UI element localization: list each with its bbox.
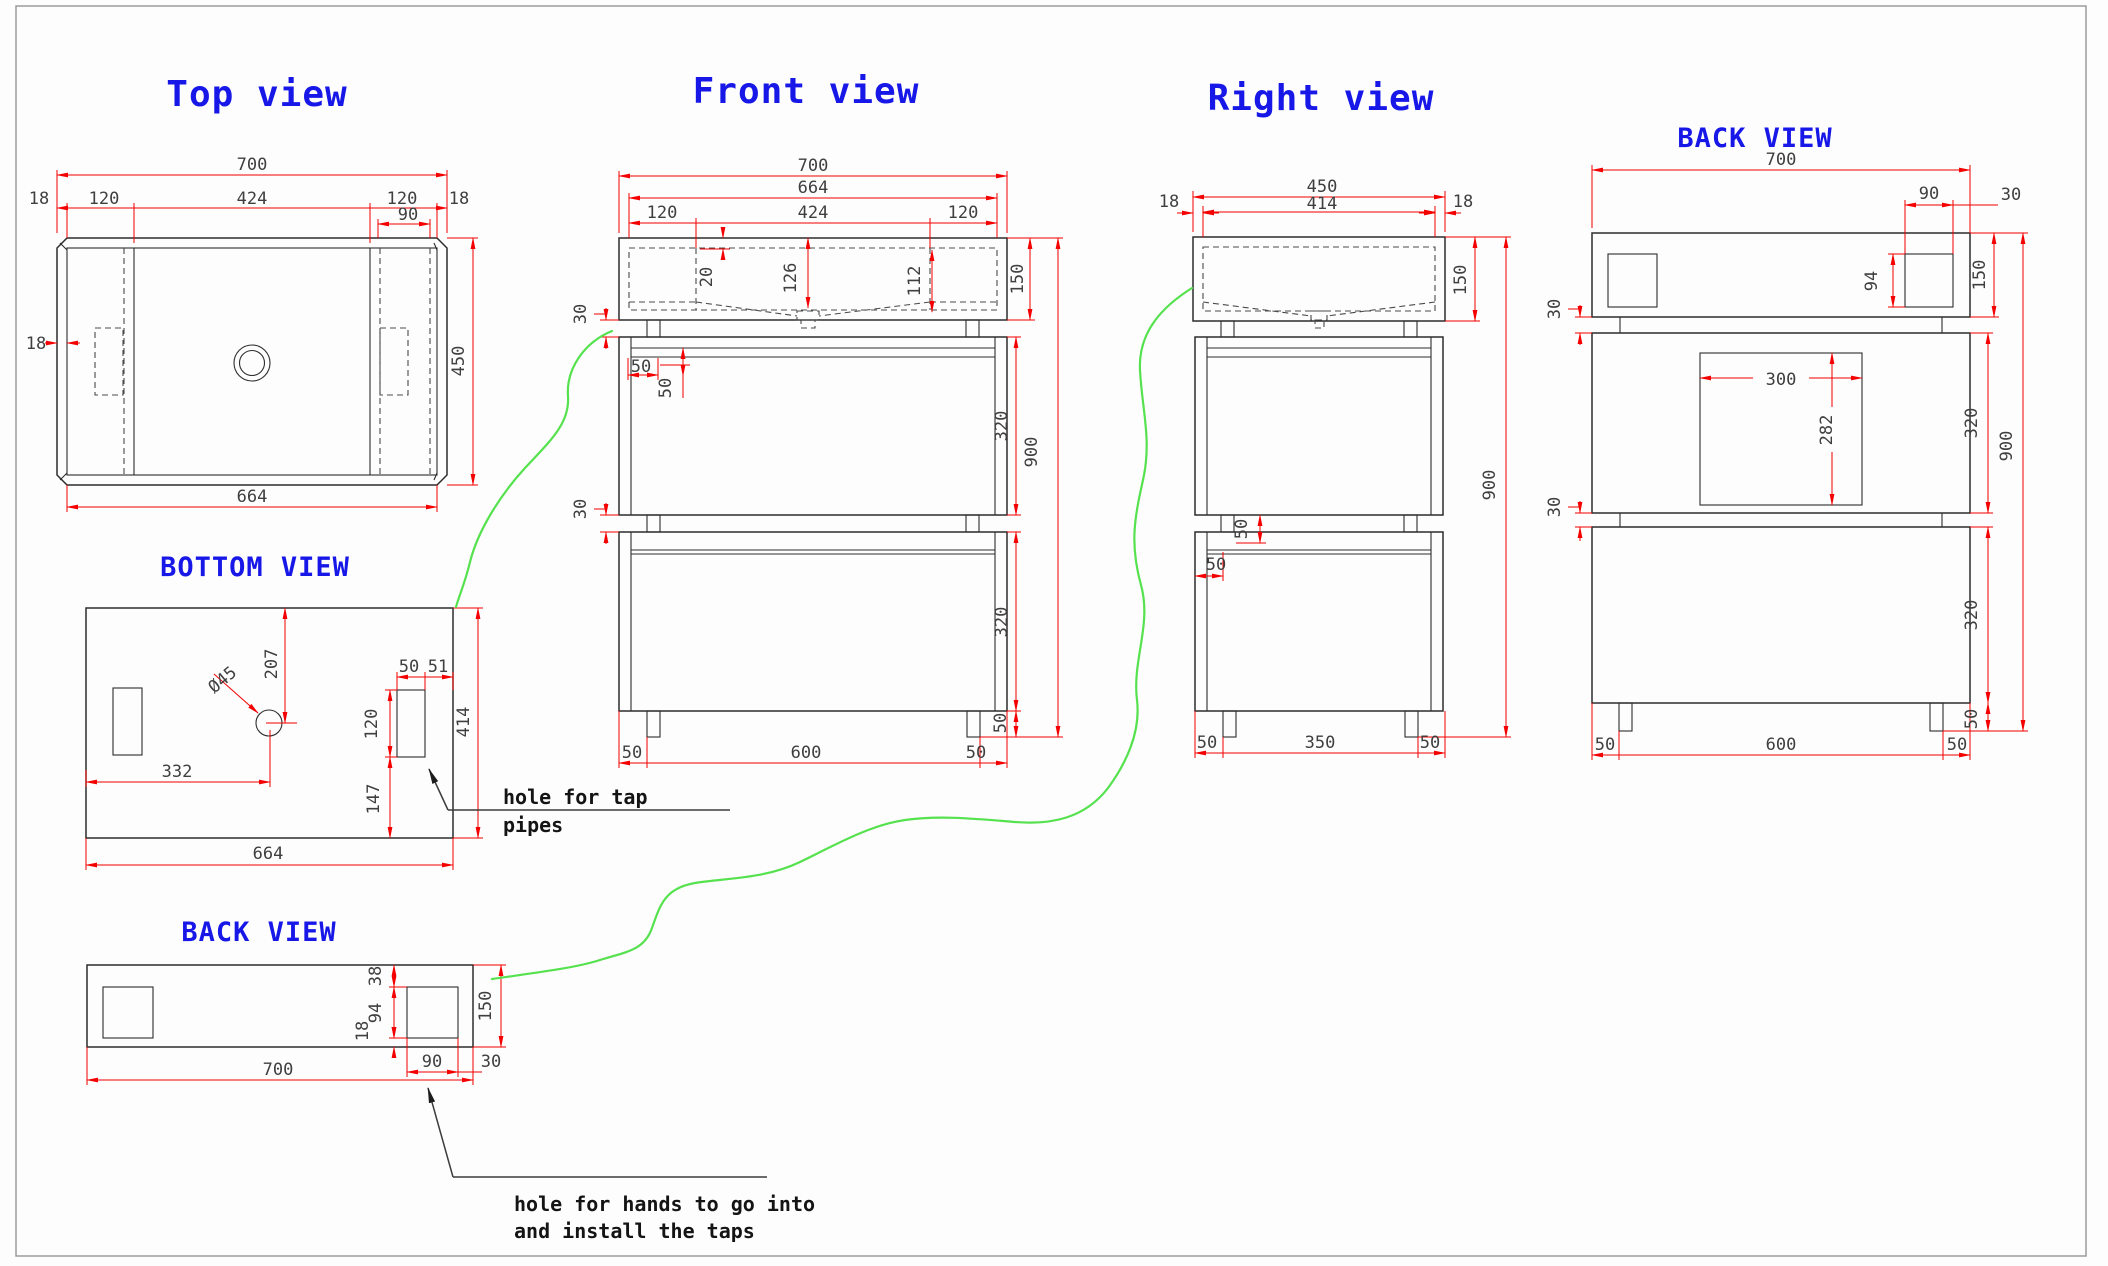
green-connector-front-to-bottom — [456, 331, 612, 607]
dim-front-overall-height: 900 — [1022, 437, 1042, 468]
sheet-border — [16, 6, 2086, 1256]
dim-top-inset-left: 120 — [89, 189, 120, 209]
dim-backtop-drawer-lower: 320 — [1962, 600, 1982, 631]
top-slot-right-hidden — [380, 328, 408, 395]
dim-front-drawer-upper: 320 — [992, 411, 1012, 442]
dim-backbottom-overall-width: 700 — [263, 1060, 294, 1080]
dim-top-depth: 450 — [449, 346, 469, 377]
dim-bottom-width: 664 — [253, 844, 284, 864]
dim-right-rail-height: 50 — [1232, 519, 1252, 539]
top-view-title: Top view — [166, 74, 347, 115]
front-basin-outline — [619, 238, 1007, 320]
dim-backtop-top-height: 150 — [1970, 260, 1990, 291]
dim-front-rim-depth: 20 — [697, 267, 717, 287]
top-outer-outline — [57, 238, 447, 485]
dim-backtop-gap-lower: 30 — [1545, 497, 1565, 517]
dim-right-foot-inset-left: 50 — [1197, 733, 1217, 753]
dim-backbottom-hole-to-edge: 30 — [481, 1052, 501, 1072]
back-top-foot-right — [1930, 703, 1943, 731]
dim-bottom-drain-from-top: 207 — [262, 649, 282, 680]
top-drain-hole — [240, 351, 265, 376]
dim-right-overall-height: 900 — [1480, 470, 1500, 501]
bottom-slot-left — [113, 688, 142, 755]
view-right: Right view 450 41 — [1159, 78, 1511, 758]
tap-pipes-leader-arrow — [429, 769, 448, 810]
dim-bottom-slot-to-bottom: 147 — [364, 784, 384, 815]
front-upper-box — [619, 337, 1007, 515]
right-spacer-left-upper — [1221, 321, 1234, 337]
dim-right-top-height: 150 — [1451, 265, 1471, 296]
green-connector-right-to-back — [492, 288, 1192, 979]
dim-front-top-inner-width: 664 — [798, 178, 829, 198]
dim-backbottom-hole-from-bottom: 18 — [353, 1021, 373, 1041]
dim-backtop-opening-height: 282 — [1817, 415, 1837, 446]
right-view-title: Right view — [1208, 78, 1435, 119]
dim-backtop-foot-span: 600 — [1766, 735, 1797, 755]
dim-front-foot-inset-left: 50 — [622, 743, 642, 763]
dim-front-basin-right: 120 — [948, 203, 979, 223]
dim-backtop-overall-width: 700 — [1766, 150, 1797, 170]
back-bottom-view-title: BACK VIEW — [181, 917, 336, 948]
dim-front-rail-height: 50 — [656, 378, 676, 398]
dim-backbottom-hole-width: 90 — [422, 1052, 442, 1072]
dim-front-rail-width: 50 — [631, 357, 651, 377]
dim-top-edge-right: 18 — [449, 189, 469, 209]
drawing-canvas: Top view 700 18 120 424 120 18 90 18 450… — [0, 0, 2108, 1266]
front-spacer-right-lower — [966, 515, 979, 532]
dim-bottom-slot-height: 120 — [362, 709, 382, 740]
dim-right-foot-span: 350 — [1305, 733, 1336, 753]
dim-front-drawer-lower: 320 — [992, 607, 1012, 638]
dim-bottom-drain-from-left: 332 — [162, 762, 193, 782]
dim-bottom-slot-width: 50 — [399, 657, 419, 677]
back-top-hole-left — [1608, 254, 1657, 307]
dim-backtop-hand-hole-width: 90 — [1919, 184, 1939, 204]
front-view-title: Front view — [693, 71, 920, 112]
back-top-hole-right — [1905, 254, 1953, 307]
dim-backtop-drawer-upper: 320 — [1962, 408, 1982, 439]
dim-backtop-foot-height: 50 — [1962, 709, 1982, 729]
dim-backtop-foot-inset-left: 50 — [1595, 735, 1615, 755]
bottom-slot-right — [397, 690, 425, 757]
back-bottom-hole-left — [103, 987, 153, 1038]
dim-backtop-overall-height: 900 — [1997, 431, 2017, 462]
front-foot-left — [647, 711, 660, 737]
dim-bottom-slot-to-edge: 51 — [428, 657, 448, 677]
right-foot-left — [1223, 711, 1236, 737]
right-basin-outline — [1193, 237, 1445, 321]
front-spacer-left-upper — [647, 320, 660, 337]
back-top-panel — [1592, 233, 1970, 317]
dim-front-basin-inner-depth: 112 — [905, 266, 925, 297]
hands-hole-leader-arrow — [428, 1088, 453, 1177]
hands-hole-note-line2: and install the taps — [514, 1219, 755, 1243]
right-spacer-right-lower — [1404, 515, 1417, 532]
view-back-bottom: BACK VIEW 38 94 18 150 90 30 700 hole fo… — [87, 917, 815, 1243]
dim-front-basin-left: 120 — [647, 203, 678, 223]
dim-right-inner-depth: 414 — [1307, 194, 1338, 214]
front-lower-box — [619, 532, 1007, 711]
view-front: Front view — [571, 71, 1063, 768]
dim-bottom-depth: 414 — [454, 707, 474, 738]
view-top: Top view 700 18 120 424 120 18 90 18 450… — [26, 74, 478, 512]
dim-backbottom-panel-height: 150 — [476, 991, 496, 1022]
dim-right-wall-right: 18 — [1453, 192, 1473, 212]
dim-front-foot-inset-right: 50 — [966, 743, 986, 763]
dim-front-drain-depth: 126 — [781, 263, 801, 294]
front-spacer-right-upper — [966, 320, 979, 337]
dim-top-inner-width: 664 — [237, 487, 268, 507]
dim-front-basin-span: 424 — [798, 203, 829, 223]
dim-backtop-hand-hole-edge: 30 — [2001, 185, 2021, 205]
back-top-upper-box — [1592, 333, 1970, 513]
dim-front-gap-upper: 30 — [571, 304, 591, 324]
back-top-lower-box — [1592, 527, 1970, 703]
dim-front-foot-height: 50 — [991, 713, 1011, 733]
back-top-view-title: BACK VIEW — [1677, 123, 1832, 154]
bottom-view-title: BOTTOM VIEW — [160, 552, 350, 583]
right-lower-box — [1195, 532, 1443, 711]
back-bottom-hole-right — [407, 987, 458, 1038]
dim-backtop-foot-inset-right: 50 — [1947, 735, 1967, 755]
dim-front-overall-width: 700 — [798, 156, 829, 176]
dim-backtop-gap-upper: 30 — [1545, 299, 1565, 319]
dim-top-wall-thickness: 18 — [26, 334, 46, 354]
dim-top-center-span: 424 — [237, 189, 268, 209]
dim-backtop-hand-hole-height: 94 — [1862, 271, 1882, 291]
dim-front-top-height: 150 — [1008, 264, 1028, 295]
front-foot-right — [967, 711, 980, 737]
dim-top-overall-width: 700 — [237, 155, 268, 175]
right-upper-box — [1195, 337, 1443, 515]
back-bottom-panel — [87, 965, 473, 1047]
hands-hole-note-line1: hole for hands to go into — [514, 1192, 815, 1216]
dim-front-foot-span: 600 — [791, 743, 822, 763]
dim-backbottom-hole-from-top: 38 — [366, 966, 386, 986]
dim-right-foot-inset-right: 50 — [1420, 733, 1440, 753]
cad-drawing-page: Top view 700 18 120 424 120 18 90 18 450… — [0, 0, 2108, 1266]
top-slot-left-hidden — [95, 328, 123, 395]
front-spacer-left-lower — [647, 515, 660, 532]
tap-pipes-note-line2: pipes — [503, 813, 563, 837]
dim-right-wall-left: 18 — [1159, 192, 1179, 212]
dim-backbottom-hole-height: 94 — [366, 1003, 386, 1023]
dim-right-rail-width: 50 — [1206, 555, 1226, 575]
dim-top-edge-left: 18 — [29, 189, 49, 209]
dim-backtop-opening-width: 300 — [1766, 370, 1797, 390]
right-foot-right — [1405, 711, 1418, 737]
view-back-top: BACK VIEW — [1545, 123, 2028, 760]
dim-front-gap-lower: 30 — [571, 499, 591, 519]
right-spacer-right-upper — [1404, 321, 1417, 337]
tap-pipes-note-line1: hole for tap — [503, 785, 648, 809]
dim-top-hand-hole-width: 90 — [398, 205, 418, 225]
back-top-foot-left — [1619, 703, 1632, 731]
